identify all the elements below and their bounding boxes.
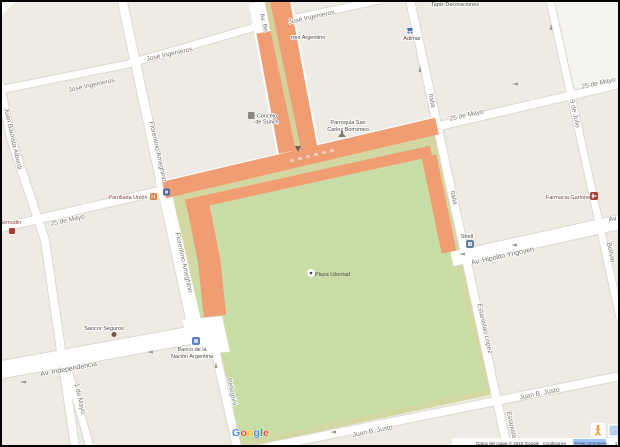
svg-text:Parroquia San: Parroquia San <box>330 120 365 126</box>
svg-text:de Sunch: de Sunch <box>255 120 278 126</box>
svg-text:o: o <box>247 427 253 439</box>
svg-text:Farmacia Garlone: Farmacia Garlone <box>546 195 590 201</box>
svg-text:Enviar comentarios: Enviar comentarios <box>575 442 608 446</box>
svg-text:e: e <box>263 427 269 439</box>
svg-text:Nación Argentina: Nación Argentina <box>171 354 214 360</box>
svg-text:a Semudio: a Semudio <box>0 220 21 226</box>
svg-text:G: G <box>232 427 240 439</box>
svg-text:Carlos Borromeo: Carlos Borromeo <box>327 127 369 133</box>
svg-text:Shell: Shell <box>461 234 473 240</box>
svg-text:Parrillada Unión: Parrillada Unión <box>108 195 147 201</box>
svg-text:g: g <box>254 427 260 439</box>
svg-text:Adimar: Adimar <box>403 36 421 42</box>
svg-text:Tapiz Decoraciones: Tapiz Decoraciones <box>431 2 479 8</box>
svg-text:Plaza Libertad: Plaza Libertad <box>315 272 350 278</box>
svg-text:Sancor Seguros: Sancor Seguros <box>84 326 124 332</box>
svg-text:Banco de la: Banco de la <box>177 347 207 353</box>
svg-text:o: o <box>241 427 247 439</box>
svg-text:rreo Argentino: rreo Argentino <box>291 35 326 41</box>
